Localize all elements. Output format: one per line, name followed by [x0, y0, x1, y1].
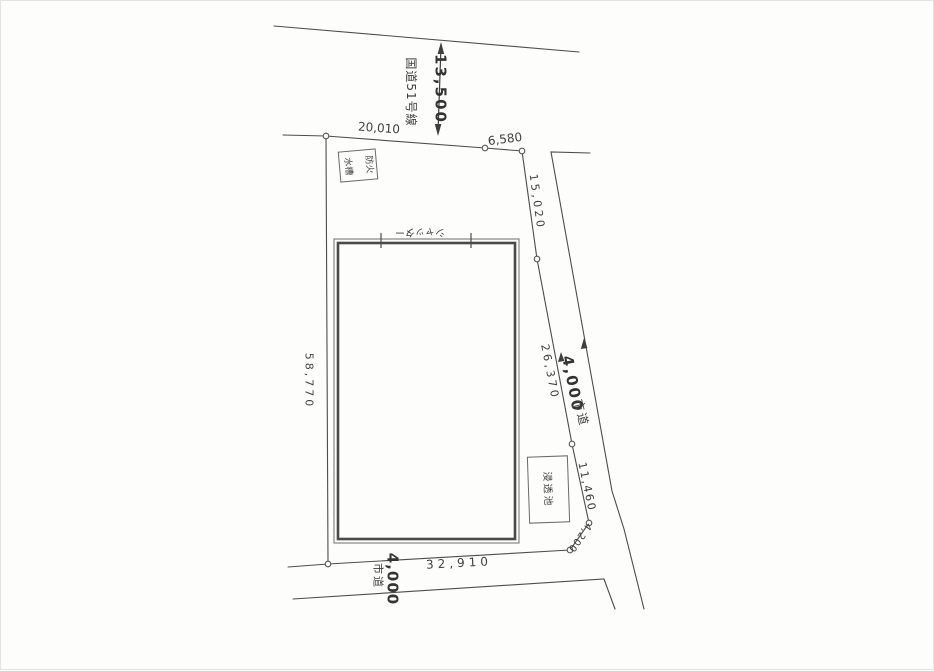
bottom-road-far-edge-line: [293, 579, 615, 609]
infiltration-pond-box: 浸透池: [527, 455, 570, 523]
bottom-road-name-label: 市道: [373, 563, 384, 589]
site-plan-drawing: 国道51号線 13,500 20,010 6,580 シャッター 15,020 …: [0, 0, 934, 670]
site-plan-linework: [1, 1, 934, 671]
bottom-road-width-dimension: 4,000: [385, 553, 400, 605]
arrow-road-width-icon: [581, 338, 588, 349]
west-boundary-line: [326, 137, 328, 563]
building-outline: [334, 233, 519, 543]
infiltration-pond-label: 浸透池: [540, 471, 556, 508]
arrow-up-icon: [438, 42, 445, 54]
fire-water-tank-label-line2: 水槽: [342, 157, 354, 176]
fire-water-tank-box: 防火 水槽: [338, 148, 379, 182]
route51-name-label: 国道51号線: [405, 57, 417, 126]
shutter-label: シャッター: [395, 226, 445, 236]
north-left-dimension: 20,010: [358, 121, 401, 136]
arrow-down-icon: [435, 124, 442, 136]
route51-width-dimension: 13,500: [433, 54, 448, 124]
fire-water-tank-label-line1: 防火: [362, 155, 374, 174]
route51-far-edge-line: [274, 26, 579, 52]
west-dimension: 58,770: [304, 353, 315, 410]
south-dimension: 32,910: [426, 555, 493, 570]
